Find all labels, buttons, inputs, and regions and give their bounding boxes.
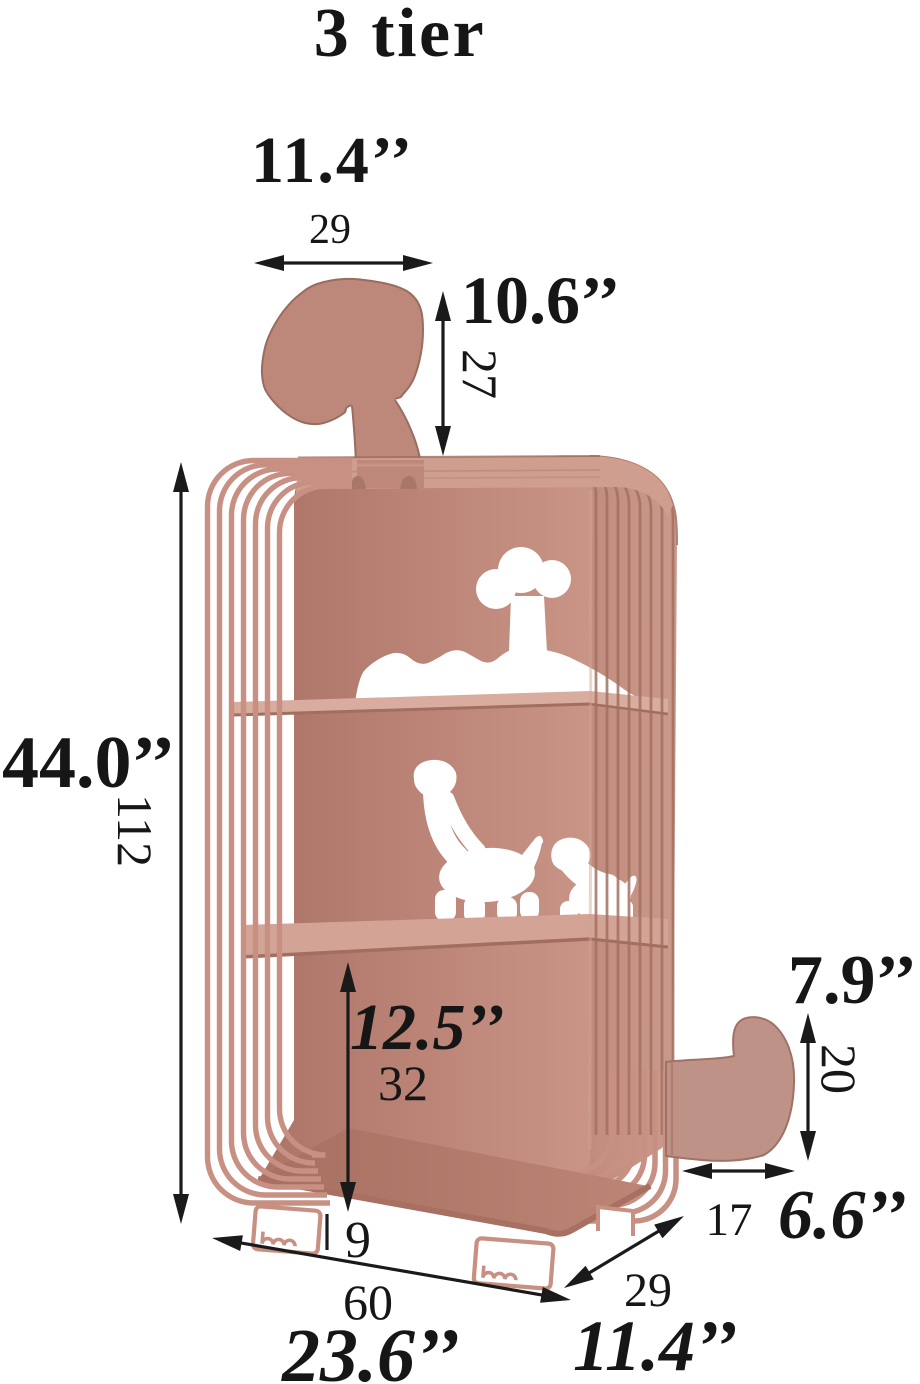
svg-text:3 tier: 3 tier (314, 0, 486, 72)
svg-text:27: 27 (452, 349, 508, 399)
svg-text:112: 112 (107, 794, 163, 867)
svg-text:32: 32 (378, 1055, 428, 1111)
svg-text:17: 17 (706, 1194, 753, 1246)
svg-text:12.5’’: 12.5’’ (350, 991, 505, 1064)
svg-text:11.4’’: 11.4’’ (573, 1306, 738, 1384)
svg-text:29: 29 (309, 207, 351, 253)
svg-text:10.6’’: 10.6’’ (461, 262, 620, 338)
svg-text:7.9’’: 7.9’’ (788, 942, 917, 1019)
svg-text:44.0’’: 44.0’’ (2, 722, 175, 804)
svg-text:20: 20 (811, 1044, 867, 1094)
svg-text:23.6’’: 23.6’’ (281, 1314, 460, 1384)
svg-text:9: 9 (345, 1212, 371, 1269)
svg-text:6.6’’: 6.6’’ (778, 1177, 907, 1254)
svg-text:11.4’’: 11.4’’ (251, 124, 414, 197)
